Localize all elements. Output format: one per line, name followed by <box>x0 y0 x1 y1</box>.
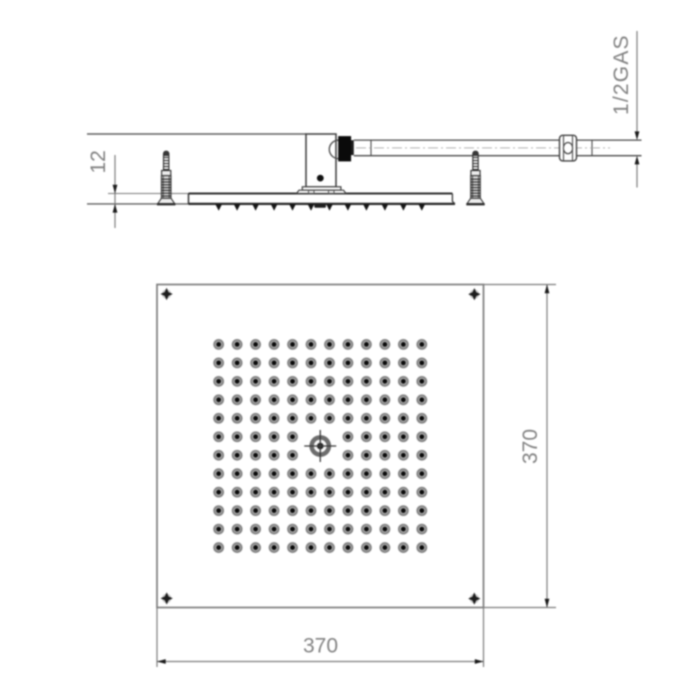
svg-text:1/2GAS: 1/2GAS <box>610 34 633 115</box>
svg-text:12: 12 <box>87 150 110 173</box>
svg-text:370: 370 <box>303 635 338 658</box>
svg-text:370: 370 <box>519 429 542 464</box>
